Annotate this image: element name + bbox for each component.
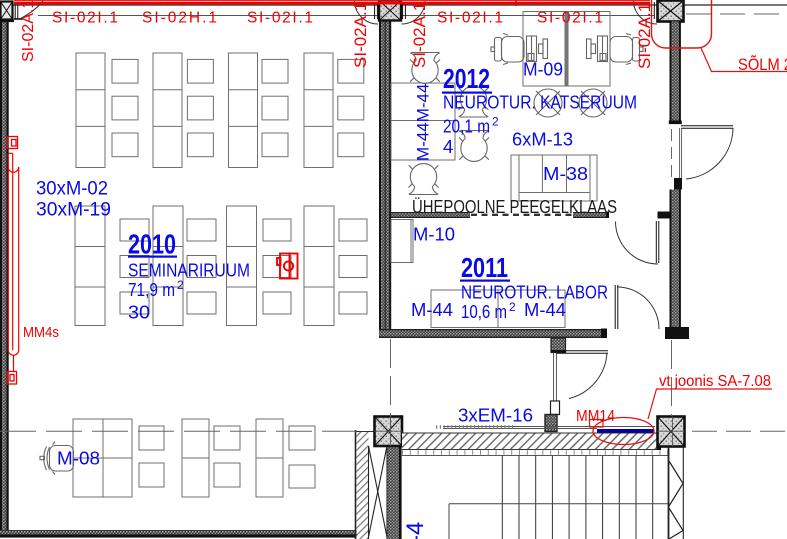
svg-text:SI-02A.1: SI-02A.1: [20, 0, 37, 62]
svg-text:SEMINARIRUUM: SEMINARIRUUM: [128, 260, 250, 281]
svg-text:M-10: M-10: [413, 225, 455, 245]
svg-text:6xM-13: 6xM-13: [512, 130, 573, 150]
svg-text:SI-02A.1: SI-02A.1: [410, 2, 429, 68]
svg-text:MM14: MM14: [576, 408, 615, 425]
svg-text:M-09: M-09: [523, 60, 563, 80]
svg-text:-4: -4: [402, 522, 429, 539]
svg-text:M-08: M-08: [57, 449, 100, 469]
svg-text:vt joonis SA-7.08: vt joonis SA-7.08: [659, 373, 771, 390]
svg-text:30xM-02: 30xM-02: [36, 179, 108, 200]
svg-text:NEUROTUR. KATSERUUM: NEUROTUR. KATSERUUM: [443, 91, 637, 112]
svg-text:M-38: M-38: [543, 164, 588, 184]
svg-text:2011: 2011: [461, 252, 508, 283]
svg-text:2: 2: [492, 115, 499, 129]
svg-text:SÕLM 2: SÕLM 2: [738, 55, 787, 74]
svg-text:20,1 m: 20,1 m: [443, 116, 490, 137]
svg-text:2: 2: [509, 300, 516, 314]
svg-text:2012: 2012: [443, 63, 490, 94]
svg-text:ÜHEPOOLNE PEEGELKLAAS: ÜHEPOOLNE PEEGELKLAAS: [412, 197, 617, 217]
svg-text:30xM-19: 30xM-19: [36, 200, 111, 221]
svg-text:SI-02A.1: SI-02A.1: [351, 2, 370, 68]
svg-text:2: 2: [177, 278, 184, 292]
svg-text:M-44M-44: M-44M-44: [414, 84, 433, 161]
svg-text:3xEM-16: 3xEM-16: [458, 406, 533, 426]
svg-text:M-44: M-44: [411, 300, 453, 320]
svg-text:MM4s: MM4s: [23, 324, 59, 341]
svg-text:30: 30: [128, 302, 150, 323]
svg-text:71,9 m: 71,9 m: [128, 279, 175, 300]
svg-text:4: 4: [443, 136, 453, 157]
svg-text:M-44: M-44: [524, 300, 566, 320]
svg-text:10,6 m: 10,6 m: [461, 301, 507, 322]
svg-text:2010: 2010: [128, 229, 176, 260]
